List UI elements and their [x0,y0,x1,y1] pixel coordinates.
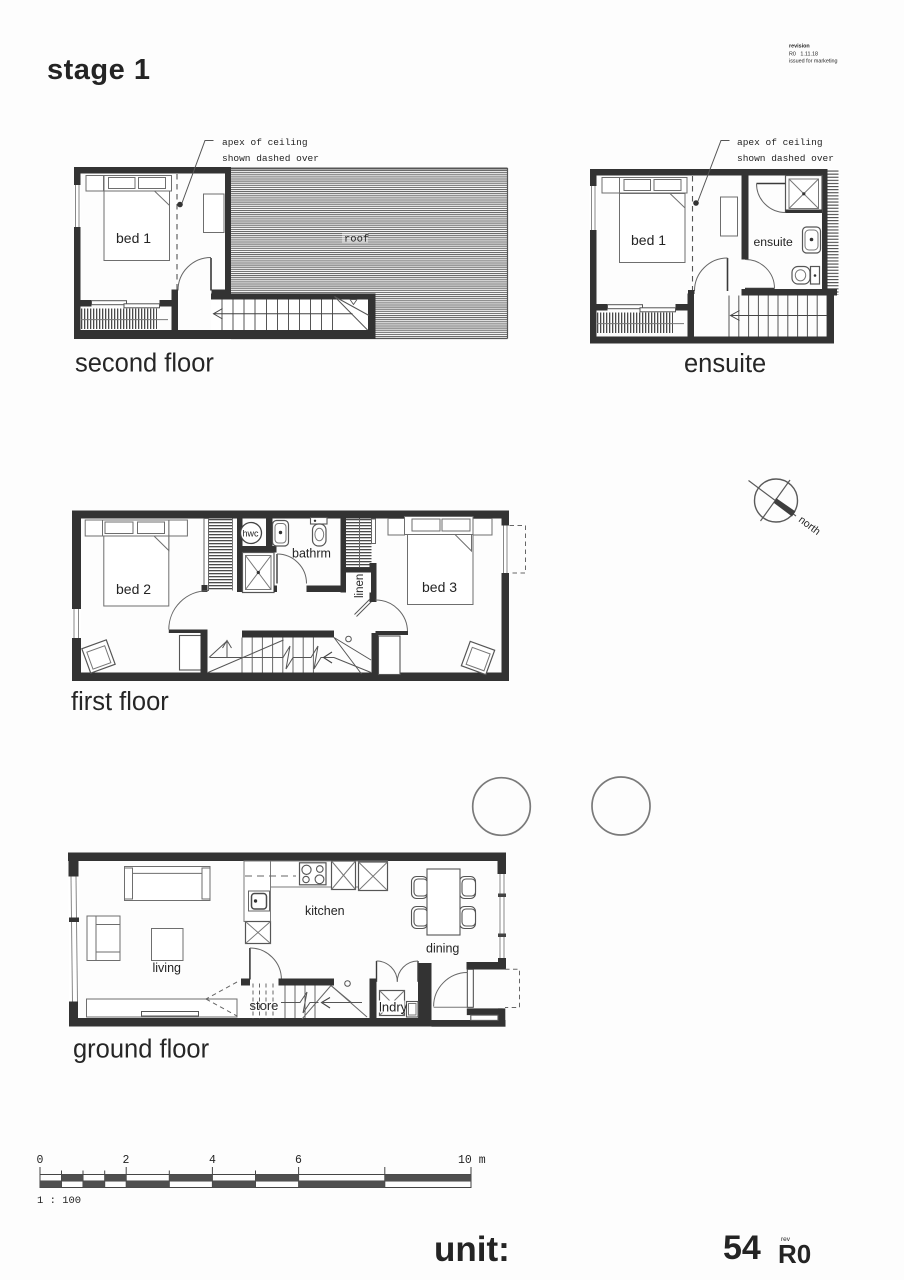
svg-text:bed 3: bed 3 [422,579,457,595]
svg-text:roof: roof [344,234,369,246]
svg-text:lndry: lndry [379,1000,408,1015]
svg-text:54: 54 [723,1229,761,1267]
svg-text:second floor: second floor [75,350,214,378]
svg-text:R0 1.11.18: R0 1.11.18 [789,52,818,58]
svg-text:unit:: unit: [434,1230,510,1269]
svg-text:ensuite: ensuite [684,350,766,378]
svg-text:issued for marketing: issued for marketing [789,59,838,65]
svg-text:linen: linen [354,574,366,598]
svg-text:revision: revision [789,44,810,50]
svg-text:apex of ceiling: apex of ceiling [737,137,823,148]
svg-text:hwc: hwc [243,529,260,539]
svg-text:ground floor: ground floor [73,1036,210,1064]
svg-text:apex of ceiling: apex of ceiling [222,137,308,148]
svg-text:bed 1: bed 1 [631,232,666,248]
svg-text:4: 4 [209,1154,216,1167]
svg-text:dining: dining [426,942,459,956]
svg-text:bed 1: bed 1 [116,230,151,246]
svg-text:bathrm: bathrm [292,547,331,561]
svg-text:store: store [250,998,279,1013]
svg-text:ensuite: ensuite [754,235,794,249]
svg-text:1 : 100: 1 : 100 [37,1195,81,1207]
svg-text:shown dashed over: shown dashed over [222,153,319,164]
svg-text:kitchen: kitchen [305,904,345,918]
svg-text:first floor: first floor [71,688,169,716]
svg-text:bed 2: bed 2 [116,581,151,597]
svg-text:stage 1: stage 1 [47,54,150,86]
svg-text:0: 0 [37,1154,44,1167]
svg-text:R0: R0 [778,1239,811,1269]
svg-text:shown dashed over: shown dashed over [737,153,834,164]
svg-text:living: living [153,961,182,975]
svg-text:10 m: 10 m [458,1154,486,1167]
svg-text:6: 6 [295,1154,302,1167]
svg-text:2: 2 [123,1154,130,1167]
